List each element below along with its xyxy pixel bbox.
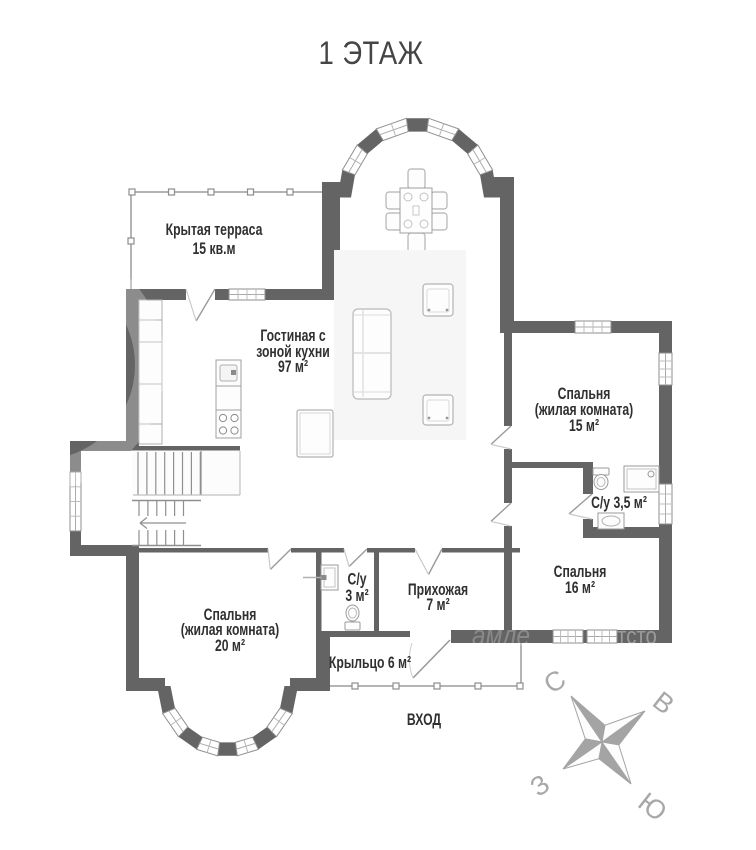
- svg-text:Крыльцо 6 м²: Крыльцо 6 м²: [329, 654, 411, 672]
- svg-text:15 кв.м: 15 кв.м: [193, 240, 236, 258]
- svg-text:С/у 3,5 м²: С/у 3,5 м²: [591, 494, 647, 512]
- svg-text:3 м²: 3 м²: [345, 587, 368, 605]
- svg-text:тсто: тсто: [617, 622, 657, 649]
- svg-text:амле: амле: [472, 619, 530, 651]
- svg-text:1 ЭТАЖ: 1 ЭТАЖ: [319, 36, 424, 71]
- svg-text:С/у: С/у: [348, 571, 367, 589]
- svg-text:20 м²: 20 м²: [215, 637, 245, 655]
- svg-text:16 м²: 16 м²: [565, 579, 595, 597]
- svg-text:7 м²: 7 м²: [426, 596, 449, 614]
- svg-text:15 м²: 15 м²: [569, 417, 599, 435]
- svg-text:ВХОД: ВХОД: [407, 711, 442, 729]
- svg-text:97 м²: 97 м²: [278, 358, 308, 376]
- svg-text:Крытая терраса: Крытая терраса: [166, 221, 264, 239]
